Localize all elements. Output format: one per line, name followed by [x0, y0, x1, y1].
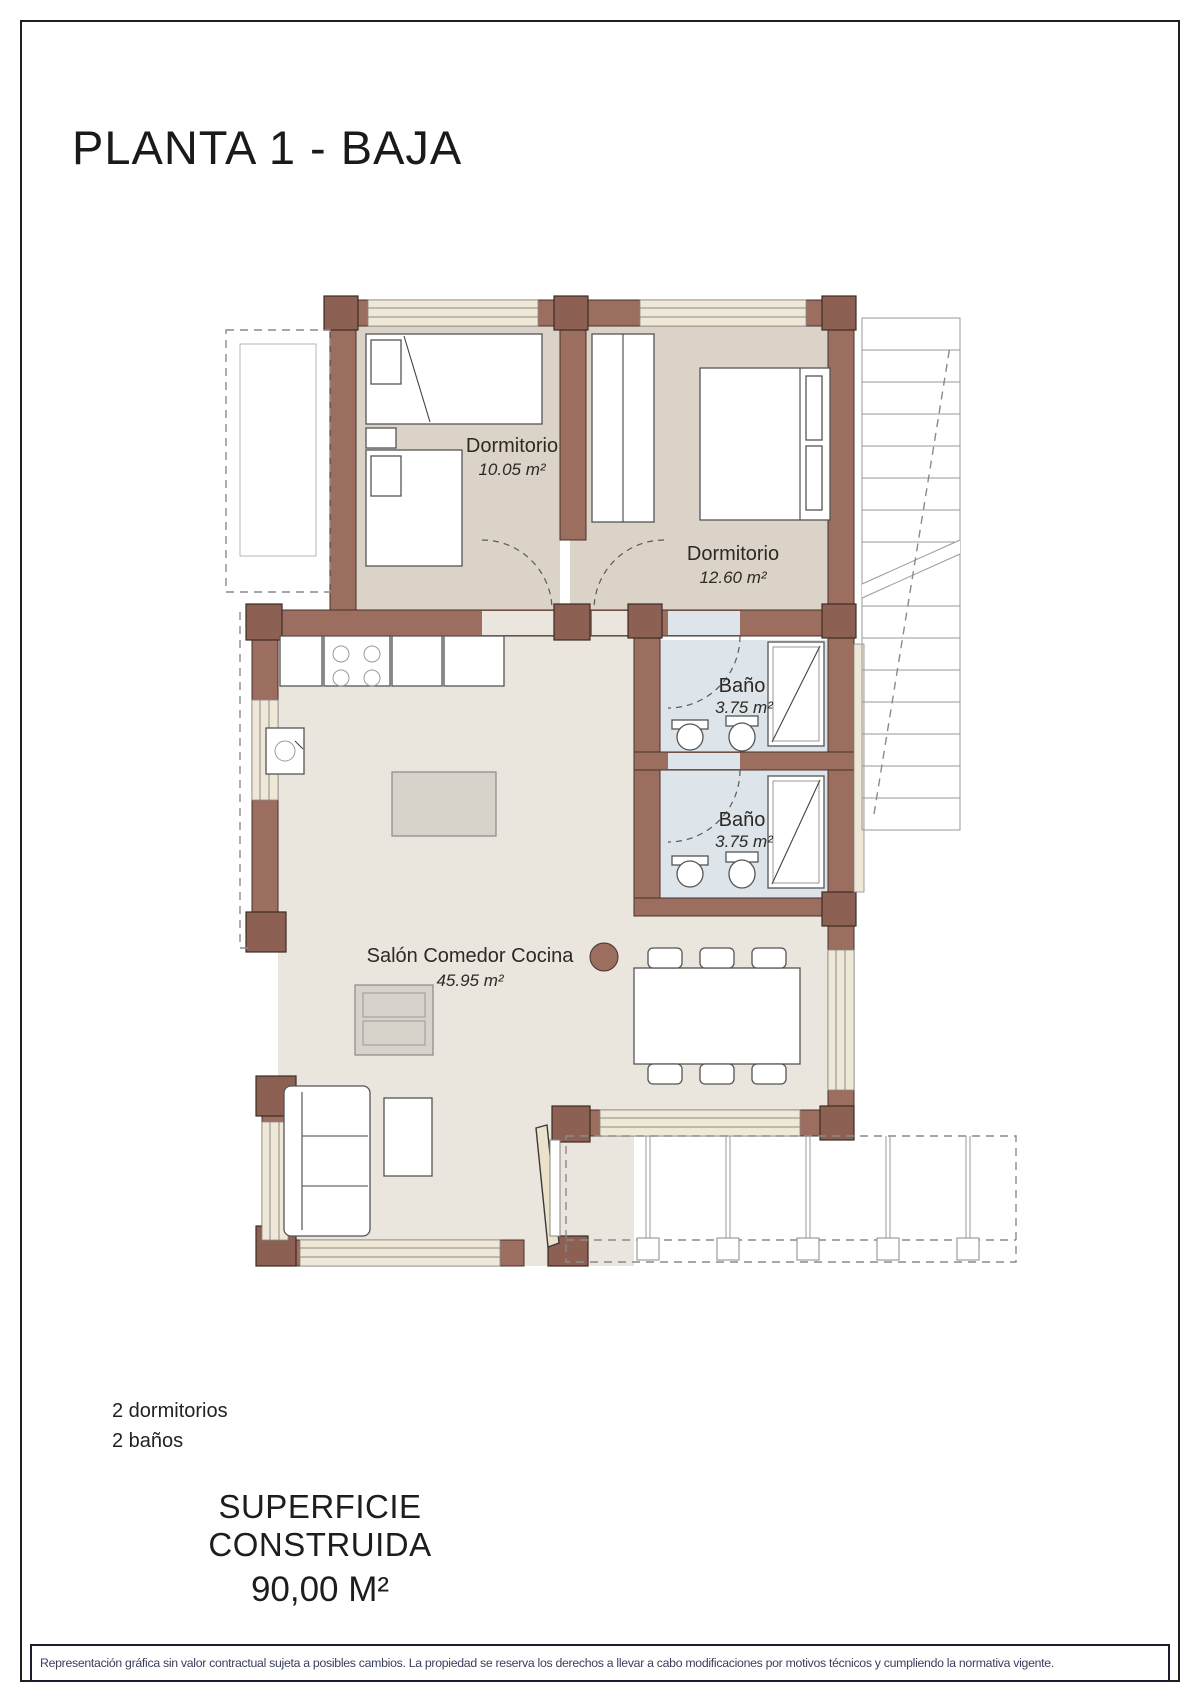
structural-column — [590, 943, 618, 971]
chair — [648, 1064, 682, 1084]
toilet — [729, 723, 755, 751]
kitchen-counter — [444, 636, 504, 686]
pillow — [806, 376, 822, 440]
wall-bath-divider — [634, 752, 854, 770]
chair — [700, 948, 734, 968]
bath1-area: 3.75 m² — [715, 698, 774, 717]
built-surface: SUPERFICIE CONSTRUIDA 90,00 M² — [110, 1488, 530, 1610]
bath1-door-opening — [668, 611, 740, 635]
corner-block — [822, 296, 856, 330]
bath1-label: Baño — [719, 675, 766, 697]
toilet — [729, 860, 755, 888]
corner-block — [246, 912, 286, 952]
terrace-posts — [646, 1136, 970, 1238]
bath2-door-opening — [668, 753, 740, 769]
bedroom2-area: 12.60 m² — [699, 568, 767, 587]
built-surface-label: SUPERFICIE CONSTRUIDA — [110, 1488, 530, 1564]
glass-wall — [550, 1140, 560, 1236]
corner-block — [554, 604, 590, 640]
wall-bedroom-divider — [560, 300, 586, 540]
summary-bedrooms: 2 dormitorios — [112, 1396, 228, 1426]
kitchen-island — [392, 772, 496, 836]
stairs — [862, 318, 960, 830]
bedroom2-label: Dormitorio — [687, 543, 779, 565]
legal-disclaimer-text: Representación gráfica sin valor contrac… — [40, 1656, 1054, 1670]
coffee-table — [384, 1098, 432, 1176]
bedroom1-label: Dormitorio — [466, 435, 558, 457]
room-summary: 2 dormitorios 2 baños — [112, 1396, 228, 1456]
chair — [752, 948, 786, 968]
wall-sink-unit — [266, 728, 304, 774]
corner-block — [820, 1106, 854, 1140]
corner-block — [822, 892, 856, 926]
chair — [700, 1064, 734, 1084]
bedroom1-door-opening — [482, 611, 554, 635]
salon-label: Salón Comedor Cocina — [367, 945, 575, 967]
dining-table — [634, 968, 800, 1064]
sofa — [284, 1086, 370, 1236]
window — [828, 950, 854, 1090]
corner-block — [246, 604, 282, 640]
nightstand — [366, 428, 396, 448]
pillow — [371, 456, 401, 496]
window — [640, 300, 806, 326]
corner-block — [554, 296, 588, 330]
pillow — [371, 340, 401, 384]
sink — [677, 861, 703, 887]
sink — [677, 724, 703, 750]
wall-bath-bottom — [634, 898, 854, 916]
wall-bath-left — [634, 636, 660, 916]
kitchen-counter — [280, 636, 322, 686]
wall-bedroom1-left — [330, 300, 356, 610]
chair — [752, 1064, 786, 1084]
window — [300, 1240, 500, 1266]
stairs-break-line — [862, 540, 960, 584]
corner-block — [822, 604, 856, 638]
corner-block — [324, 296, 358, 330]
summary-bathrooms: 2 baños — [112, 1426, 228, 1456]
bath2-area: 3.75 m² — [715, 832, 774, 851]
pillow — [806, 446, 822, 510]
legal-disclaimer: Representación gráfica sin valor contrac… — [30, 1644, 1170, 1682]
bedroom1-area: 10.05 m² — [478, 460, 546, 479]
window — [600, 1110, 800, 1136]
window — [368, 300, 538, 326]
kitchen-counter — [392, 636, 442, 686]
terrace-top-left-inner — [240, 344, 316, 556]
floor-plan-sheet: PLANTA 1 - BAJA — [0, 0, 1200, 1702]
bath2-label: Baño — [719, 809, 766, 831]
terrace-post-bases — [637, 1238, 979, 1260]
built-surface-value: 90,00 M² — [110, 1570, 530, 1610]
salon-area: 45.95 m² — [436, 971, 504, 990]
corner-block — [628, 604, 662, 638]
stairs-break-line — [862, 554, 960, 598]
chair — [648, 948, 682, 968]
